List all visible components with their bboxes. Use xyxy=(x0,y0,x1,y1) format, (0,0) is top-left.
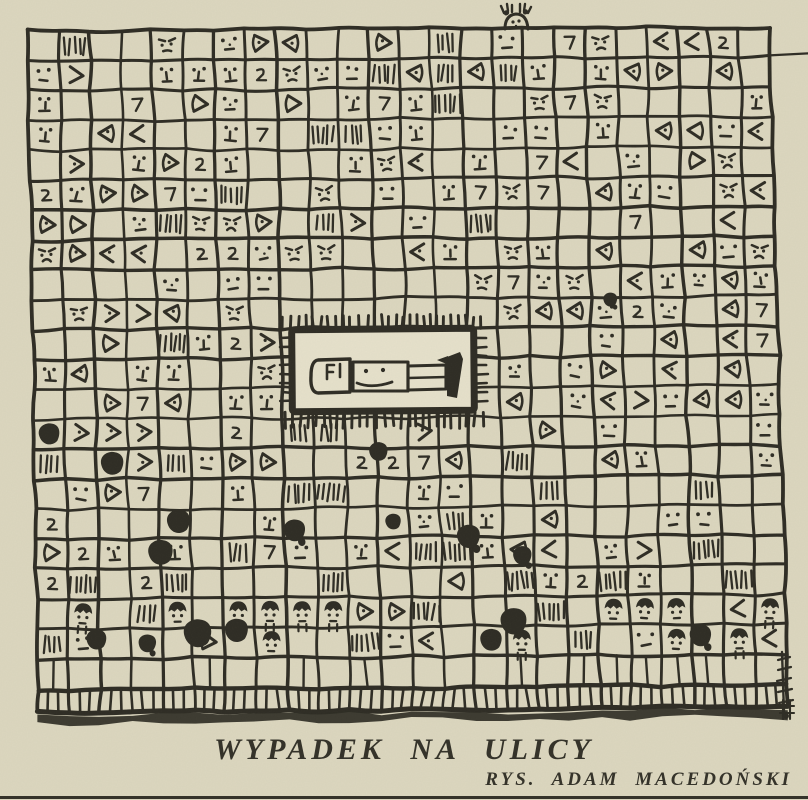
caption-title: WYPADEK NA ULICY xyxy=(0,733,808,767)
caption-credit: RYS. ADAM MACEDOŃSKI xyxy=(485,769,792,791)
paper-grain-overlay xyxy=(0,0,808,800)
cartoon-figure: WYPADEK NA ULICY RYS. ADAM MACEDOŃSKI xyxy=(0,0,808,800)
page-bottom-rule xyxy=(0,796,808,799)
illustration-canvas xyxy=(0,0,808,800)
